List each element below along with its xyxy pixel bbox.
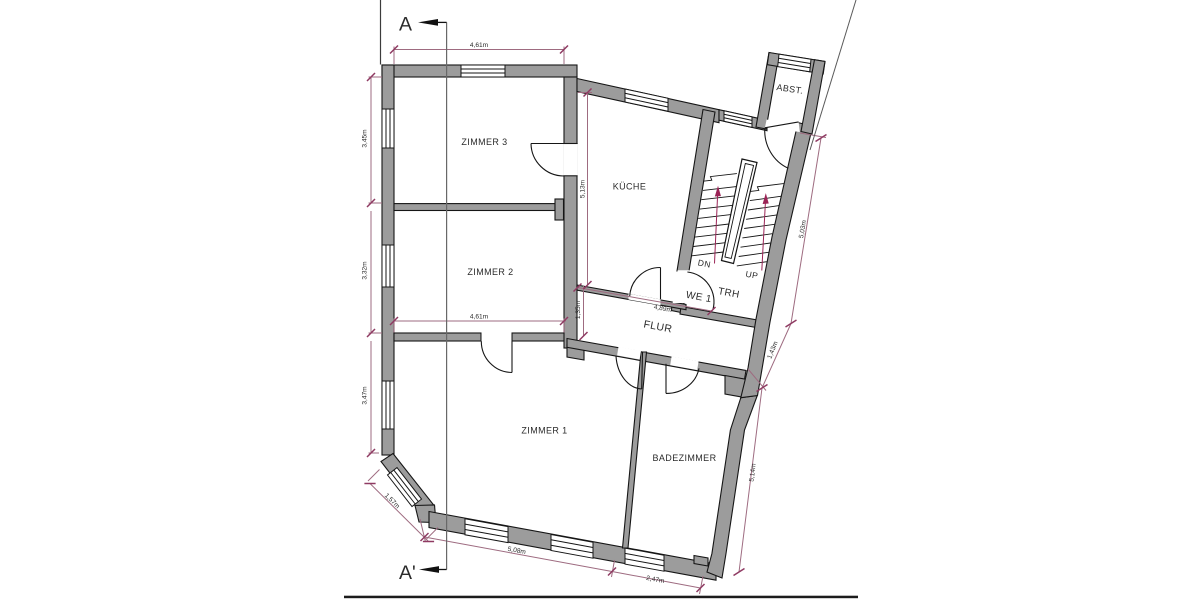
svg-text:ABST.: ABST. <box>776 82 804 96</box>
svg-text:3,32m: 3,32m <box>362 261 369 280</box>
svg-text:WE 1: WE 1 <box>685 290 713 306</box>
svg-text:ZIMMER 1: ZIMMER 1 <box>521 426 567 436</box>
svg-text:DN: DN <box>697 257 712 269</box>
svg-text:5,13m: 5,13m <box>580 179 587 198</box>
svg-text:1,57m: 1,57m <box>383 492 401 510</box>
svg-text:1,43m: 1,43m <box>766 340 780 360</box>
svg-text:A': A' <box>399 562 416 584</box>
svg-text:3,47m: 3,47m <box>362 386 369 405</box>
svg-text:1,35m: 1,35m <box>575 300 582 319</box>
svg-text:5,08m: 5,08m <box>507 546 527 556</box>
svg-text:4,61m: 4,61m <box>470 314 489 321</box>
svg-text:4,61m: 4,61m <box>470 42 489 49</box>
svg-text:5,14m: 5,14m <box>748 463 757 483</box>
svg-text:A: A <box>399 14 412 36</box>
svg-text:KÜCHE: KÜCHE <box>613 182 647 192</box>
svg-text:UP: UP <box>745 269 759 281</box>
svg-text:BADEZIMMER: BADEZIMMER <box>652 453 716 463</box>
svg-text:3,45m: 3,45m <box>362 129 369 148</box>
svg-text:2,47m: 2,47m <box>646 575 666 585</box>
svg-text:ZIMMER 2: ZIMMER 2 <box>467 267 513 277</box>
svg-text:FLUR: FLUR <box>643 318 674 335</box>
svg-text:ZIMMER 3: ZIMMER 3 <box>461 137 507 147</box>
svg-text:TRH: TRH <box>717 286 740 301</box>
